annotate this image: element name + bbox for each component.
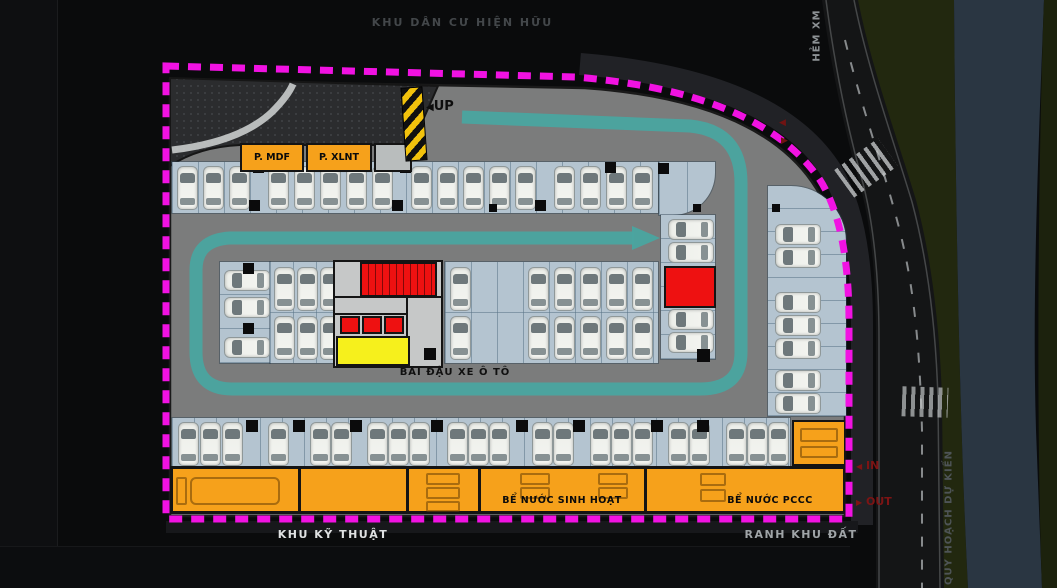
car <box>450 316 471 360</box>
car <box>726 422 747 466</box>
room-xlnt: P. XLNT <box>306 143 372 172</box>
car <box>200 422 221 466</box>
structural-column <box>243 263 254 274</box>
core-elevator-1 <box>340 316 360 334</box>
gate-in-label: IN <box>866 459 879 472</box>
room-mdf-label: P. MDF <box>254 152 290 163</box>
car <box>310 422 331 466</box>
car <box>775 338 821 359</box>
structural-column <box>516 420 528 432</box>
car <box>580 166 601 210</box>
car <box>528 316 549 360</box>
core-elevator-2 <box>362 316 382 334</box>
structural-column <box>392 200 403 211</box>
car <box>580 267 601 311</box>
structural-column <box>651 420 663 432</box>
equipment-rack-3 <box>426 501 460 512</box>
car <box>668 242 714 263</box>
arrow-left-icon: ◀ <box>426 102 434 113</box>
equipment-rack-4 <box>520 473 550 485</box>
gate-out: ▶ OUT <box>856 495 892 508</box>
car <box>463 166 484 210</box>
water-tank-domestic-label: BỂ NƯỚC SINH HOẠT <box>482 495 642 506</box>
planned-road-label: QUY HOẠCH DỰ KIẾN <box>944 438 955 588</box>
site-boundary-label: RANH KHU ĐẤT <box>721 528 881 541</box>
core-yellow-room <box>336 336 410 366</box>
gate-out-arrow-right-icon: ▶ <box>856 498 862 507</box>
car <box>224 297 270 318</box>
core-wall-b <box>335 313 407 315</box>
car <box>768 422 789 466</box>
car <box>632 422 653 466</box>
gate-out-label: OUT <box>866 495 892 508</box>
structural-column <box>658 163 669 174</box>
equipment-rack-6 <box>598 473 628 485</box>
parking-area-label: BÃI ĐẬU XE Ô TÔ <box>375 367 535 378</box>
car <box>580 316 601 360</box>
crosswalk-east <box>901 386 948 418</box>
structural-column <box>489 204 497 212</box>
car <box>590 422 611 466</box>
structural-column <box>350 420 362 432</box>
structural-column <box>772 204 780 212</box>
car <box>515 166 536 210</box>
car <box>297 316 318 360</box>
core-wall-a <box>335 296 441 298</box>
car <box>388 422 409 466</box>
car <box>554 166 575 210</box>
car <box>268 166 289 210</box>
car <box>554 267 575 311</box>
car <box>274 267 295 311</box>
car <box>489 422 510 466</box>
car <box>222 422 243 466</box>
structural-column <box>293 420 305 432</box>
car <box>554 316 575 360</box>
car <box>447 422 468 466</box>
car <box>411 166 432 210</box>
car <box>268 422 289 466</box>
structural-column <box>424 348 436 360</box>
structural-column <box>697 420 709 432</box>
car <box>468 422 489 466</box>
structural-column <box>573 420 585 432</box>
equipment-rack-8 <box>700 473 726 486</box>
car <box>178 422 199 466</box>
car <box>229 166 250 210</box>
car <box>528 267 549 311</box>
east-technical-room <box>792 420 846 466</box>
east-equipment-1 <box>800 428 838 442</box>
room-xlnt-label: P. XLNT <box>319 152 359 163</box>
car <box>668 422 689 466</box>
car <box>668 309 714 330</box>
car <box>320 166 341 210</box>
basement-parking-plan: P. MDF P. XLNT BỂ NƯỚC SINH HOẠT BỂ NƯỚC… <box>0 0 1057 588</box>
alley-label: HẺM XM <box>812 0 823 86</box>
gate-in-arrow-left-icon: ◀ <box>856 462 862 471</box>
structural-column <box>249 200 260 211</box>
car <box>632 267 653 311</box>
car <box>409 422 430 466</box>
car <box>532 422 553 466</box>
east-equipment-2 <box>800 446 838 458</box>
car <box>331 422 352 466</box>
car <box>224 337 270 358</box>
north-gate-arrow-right-icon: ▶ <box>781 136 788 146</box>
car <box>606 267 627 311</box>
ramp-up-text: UP <box>434 99 454 114</box>
car <box>450 267 471 311</box>
car <box>775 224 821 245</box>
car <box>775 247 821 268</box>
residential-area-label: KHU DÂN CƯ HIỆN HỮU <box>330 16 595 29</box>
structural-column <box>605 162 616 173</box>
tech-wall-4 <box>644 468 647 512</box>
ramp-up-label: ◀UP <box>426 99 454 114</box>
car <box>775 393 821 414</box>
car <box>203 166 224 210</box>
car <box>668 219 714 240</box>
car <box>177 166 198 210</box>
car <box>775 292 821 313</box>
car <box>346 166 367 210</box>
structural-column <box>693 204 701 212</box>
technical-zone-label: KHU KỸ THUẬT <box>253 528 413 541</box>
equipment-panel <box>176 477 187 505</box>
car <box>372 166 393 210</box>
car <box>775 370 821 391</box>
structural-column <box>697 349 710 362</box>
car <box>747 422 768 466</box>
core-stair-room <box>360 262 437 297</box>
gate-in: ◀ IN <box>856 459 879 472</box>
equipment-rack-2 <box>426 487 460 499</box>
car <box>297 267 318 311</box>
car <box>775 315 821 336</box>
structural-column <box>431 420 443 432</box>
east-stair-room <box>664 266 716 308</box>
tech-wall-2 <box>406 468 409 512</box>
north-gate-arrow-left-icon: ◀ <box>779 118 786 128</box>
car <box>274 316 295 360</box>
tech-wall-1 <box>298 468 301 512</box>
water-tank-fire-label: BỂ NƯỚC PCCC <box>700 495 840 506</box>
car <box>632 166 653 210</box>
car <box>294 166 315 210</box>
structural-column <box>243 323 254 334</box>
structural-column <box>246 420 258 432</box>
core-elevator-3 <box>384 316 404 334</box>
room-mdf: P. MDF <box>240 143 304 172</box>
equipment-rack-1 <box>426 473 460 485</box>
car <box>606 316 627 360</box>
structural-column <box>535 200 546 211</box>
car <box>437 166 458 210</box>
tech-wall-3 <box>478 468 481 512</box>
equipment-generator <box>190 477 280 505</box>
car <box>611 422 632 466</box>
car <box>367 422 388 466</box>
car <box>553 422 574 466</box>
car <box>632 316 653 360</box>
